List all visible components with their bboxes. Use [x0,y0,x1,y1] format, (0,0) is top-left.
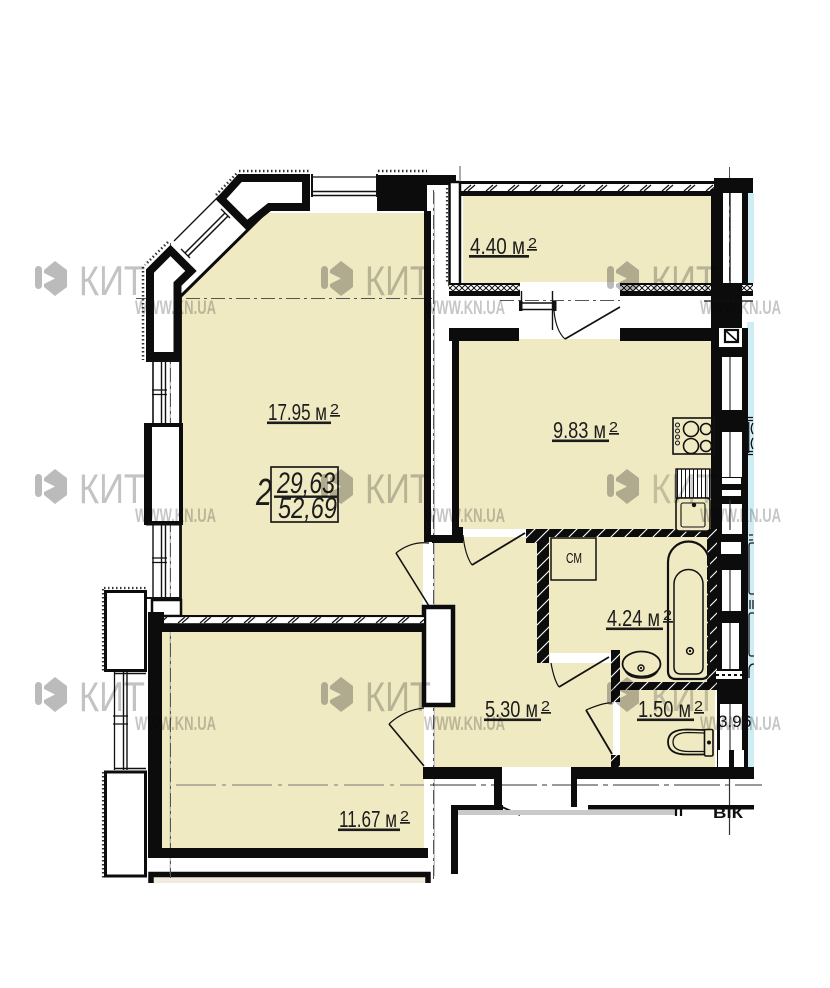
svg-text:WWW.KN.UA: WWW.KN.UA [424,506,505,527]
svg-text:WWW.KN.UA: WWW.KN.UA [700,298,781,319]
svg-text:КИТ: КИТ [365,257,431,304]
svg-text:ВІК: ВІК [713,805,744,822]
svg-text:WWW.KN.UA: WWW.KN.UA [424,714,505,735]
svg-text:КИТ: КИТ [365,465,431,512]
svg-text:WWW.KN.UA: WWW.KN.UA [700,714,781,735]
svg-text:КИТ: КИТ [365,673,431,720]
svg-text:11.67 м: 11.67 м [339,806,397,832]
svg-text:WWW.KN.UA: WWW.KN.UA [135,298,216,319]
svg-text:4.24 м: 4.24 м [607,605,660,631]
svg-text:2: 2 [255,472,272,514]
svg-text:WWW.KN.UA: WWW.KN.UA [135,714,216,735]
svg-text:17.95 м: 17.95 м [268,399,327,425]
svg-text:КИТ: КИТ [651,257,717,304]
svg-text:WWW.KN.UA: WWW.KN.UA [700,506,781,527]
svg-text:52,69: 52,69 [278,492,337,525]
svg-text:WWW.KN.UA: WWW.KN.UA [424,298,505,319]
svg-text:9.83 м: 9.83 м [553,417,606,443]
svg-text:СМ: СМ [566,551,582,567]
svg-text:КИТ: КИТ [79,465,145,512]
svg-text:WWW.KN.UA: WWW.KN.UA [135,506,216,527]
svg-text:КИТ: КИТ [651,673,717,720]
svg-text:КИТ: КИТ [651,465,717,512]
svg-text:КИТ: КИТ [79,257,145,304]
svg-text:КИТ: КИТ [79,673,145,720]
